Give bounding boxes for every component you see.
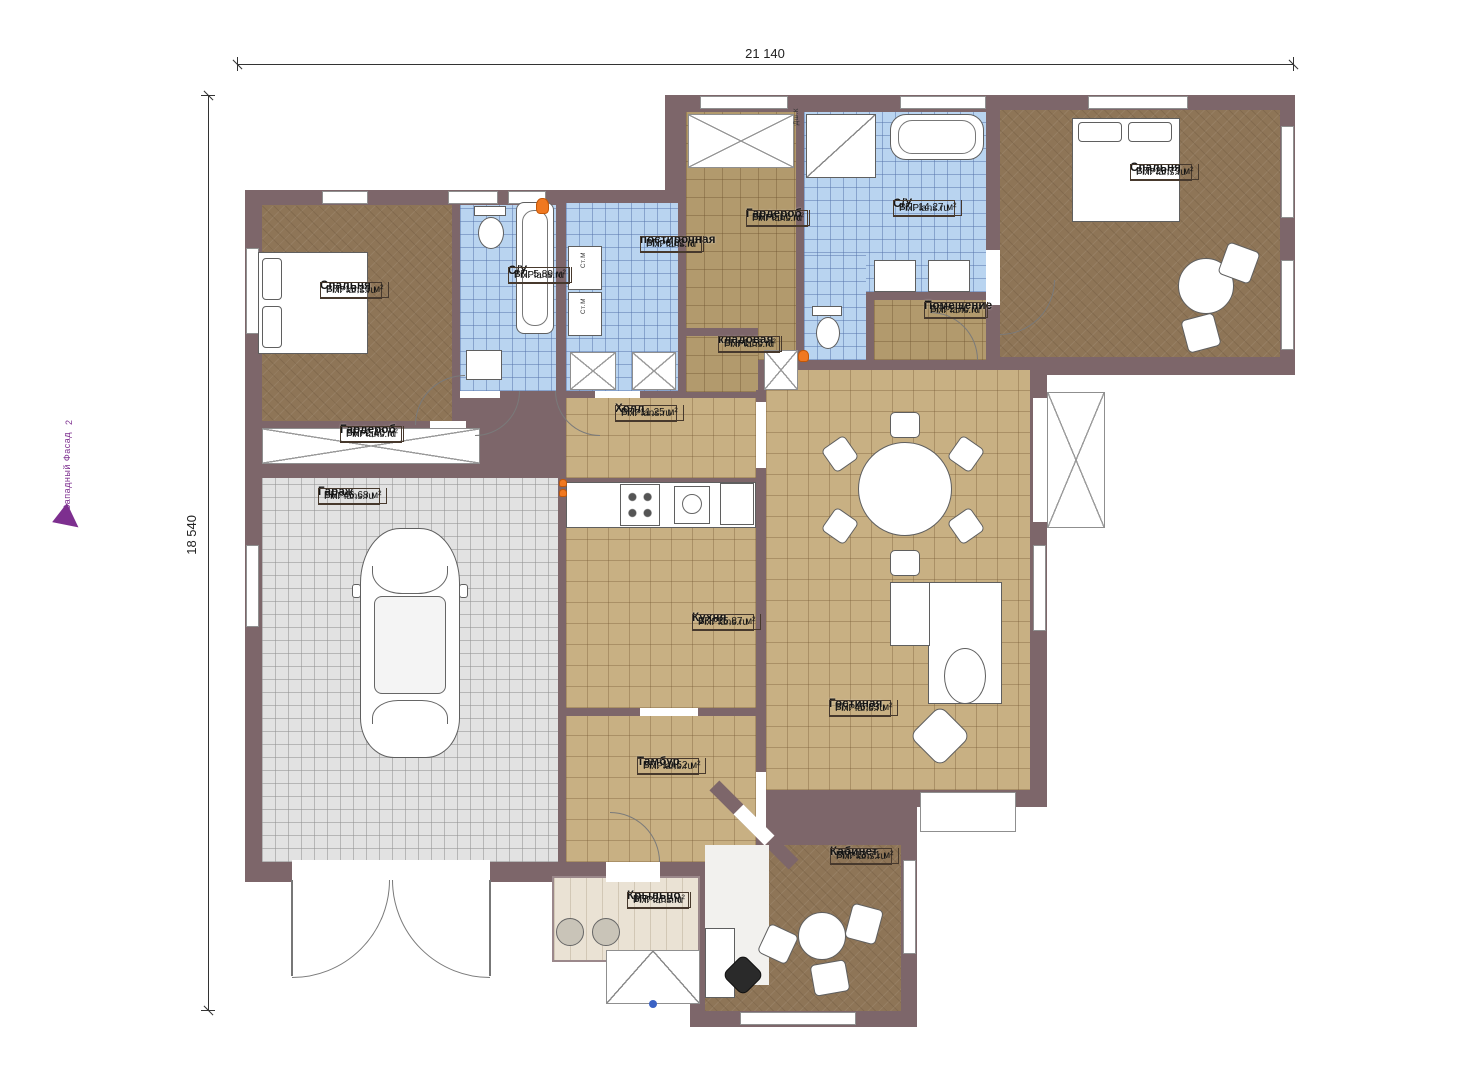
room-area: ВП: 13,71 м² (830, 848, 899, 864)
pillow (262, 306, 282, 348)
room-area: ВП: 15,87 м² (692, 614, 761, 630)
wall-partition (756, 468, 766, 708)
window (1281, 260, 1294, 350)
room-area: ВП: 5,89 м² (508, 267, 572, 283)
window (246, 545, 259, 627)
car-rear-window (372, 700, 448, 724)
fridge (720, 483, 754, 525)
window (903, 860, 916, 954)
floor-plan-page: 21 140 18 540 2 Западный Фасад (0, 0, 1474, 1080)
heater-icon (559, 479, 567, 487)
sink (874, 260, 916, 292)
washing-machine-label: Ст.М (580, 298, 587, 314)
window (740, 1012, 856, 1025)
vent-shaft (632, 352, 676, 390)
room-area: ВП: 10,52 м² (637, 758, 706, 774)
pillow (1078, 122, 1122, 142)
sink (928, 260, 970, 292)
shower-cabin-label: Дш.К (793, 108, 800, 125)
dimension-top-value: 21 140 (745, 46, 785, 61)
window (900, 96, 986, 109)
chair (890, 550, 920, 576)
room-area: ВП: 46,68 м² (318, 488, 387, 504)
wall-partition (986, 110, 1000, 357)
wall-partition (866, 292, 986, 300)
porch-steps (606, 950, 700, 1004)
chair (890, 412, 920, 438)
terrace-french-door (1047, 392, 1105, 528)
window (1088, 96, 1188, 109)
garage-door-leaf (291, 880, 293, 976)
car-mirror (352, 584, 361, 598)
passage-opening (756, 402, 766, 468)
window (700, 96, 788, 109)
room-area: ВП: 3,82 м² (627, 892, 691, 908)
door-opening (595, 391, 640, 398)
room-area: ВП: 14,27 м² (893, 200, 962, 216)
room-area: ВП: 2,76 м² (924, 302, 988, 318)
wall-partition (262, 464, 558, 478)
window (448, 191, 498, 204)
chair (809, 959, 850, 997)
garage-door-leaf (489, 880, 491, 976)
heater-icon (559, 489, 567, 497)
table (798, 912, 846, 960)
boiler-icon (536, 198, 549, 214)
dimension-line-top (237, 64, 1293, 65)
dimension-line-left (208, 95, 209, 1010)
pillow (262, 258, 282, 300)
room-area: ВП: 11,25 м² (615, 405, 684, 421)
survey-point (649, 1000, 657, 1008)
room-area: ВП: 9,56 м² (746, 210, 810, 226)
planter (592, 918, 620, 946)
facade-number: 2 (64, 420, 74, 425)
desk (705, 928, 735, 998)
planter (556, 918, 584, 946)
sofa-arm (890, 582, 930, 646)
toilet-tank (474, 206, 506, 216)
wall-partition (556, 190, 566, 393)
wall-partition (756, 390, 766, 402)
room-area: ВП: 15,26 м² (320, 282, 389, 298)
bathtub-inner (898, 120, 976, 154)
bay-window (920, 792, 1016, 832)
stove (620, 484, 660, 526)
car-mirror (459, 584, 468, 598)
window (1033, 545, 1046, 631)
entry-door-opening (606, 862, 660, 882)
kitchen-sink-basin (682, 494, 702, 514)
canopy-line (607, 951, 653, 1003)
door-opening (986, 250, 1000, 305)
window (322, 191, 368, 204)
shower-cabin (806, 114, 876, 178)
sink (466, 350, 502, 380)
room-area: ВП: 26,79 м² (1130, 164, 1199, 180)
heater-icon (798, 350, 809, 362)
door-opening (640, 708, 698, 716)
facade-marker: 2 Западный Фасад (50, 420, 80, 560)
room-area: ВП: 2,40 м² (340, 426, 404, 442)
dining-table (858, 442, 952, 536)
toilet-bowl (816, 317, 840, 349)
wall-partition (866, 292, 874, 360)
washing-machine-label: Ст.М (580, 252, 587, 268)
facade-label: Западный Фасад (62, 432, 72, 510)
toilet-bowl (478, 217, 504, 249)
vent-shaft (764, 350, 798, 390)
toilet-tank (812, 306, 842, 316)
dimension-left-value: 18 540 (184, 515, 199, 555)
garage-door-opening (292, 860, 490, 882)
vent-shaft (570, 352, 616, 390)
coffee-table (944, 648, 986, 704)
window (1281, 126, 1294, 218)
pillow (1128, 122, 1172, 142)
door-opening (756, 772, 766, 830)
canopy-line (653, 951, 699, 1003)
room-area: ВП: 45,83 м² (829, 700, 898, 716)
wall-partition (796, 112, 804, 360)
shelving-unit (688, 114, 794, 168)
room-area: ВП: 1,56 м² (718, 336, 782, 352)
terrace-door-opening (1033, 398, 1047, 522)
car-roof (374, 596, 446, 694)
room-area: ВП: 6,82 м² (640, 236, 704, 252)
